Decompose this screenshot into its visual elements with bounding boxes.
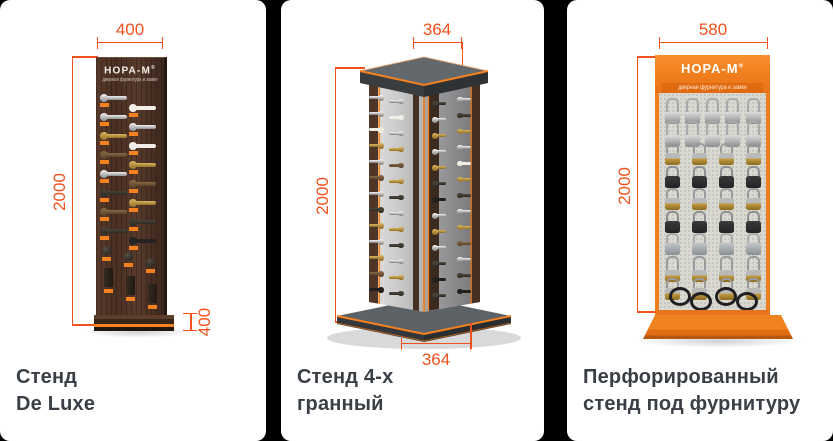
door-handle	[458, 290, 471, 293]
door-hinge	[126, 276, 135, 302]
door-handle	[458, 178, 471, 181]
padlock	[745, 143, 761, 165]
door-handle	[433, 278, 446, 281]
door-handle	[100, 94, 130, 107]
padlock	[664, 166, 680, 188]
dimension-width-label: 400	[100, 20, 160, 40]
door-handle	[389, 276, 402, 279]
brand-logo: НОРА-М® дверная фурнитура и замки	[96, 65, 164, 83]
door-handle	[389, 212, 402, 215]
brand-logo-text: НОРА-М®	[96, 65, 164, 76]
cable-lock	[715, 287, 737, 306]
door-handle	[389, 132, 402, 135]
caption-line1: Перфорированный	[583, 364, 800, 391]
padlock	[718, 211, 734, 233]
door-handle	[389, 196, 402, 199]
door-handle	[129, 161, 159, 174]
door-handle	[129, 142, 159, 155]
door-handle	[389, 164, 402, 167]
stand-base	[94, 315, 174, 331]
door-handle	[433, 198, 446, 201]
door-handle	[458, 130, 471, 133]
door-handle	[389, 228, 402, 231]
caption-line2: стенд под фурнитуру	[583, 391, 800, 418]
card-stand-de-luxe: 400 2000 НОРА-М® дверная фурнитура и зам…	[0, 0, 266, 441]
brand-logo-subtitle: дверная фурнитура и замки	[101, 77, 159, 83]
perforated-stand: НОРА-М® дверная фурнитура и замки	[655, 55, 770, 315]
door-handle	[129, 199, 159, 212]
door-handle	[458, 258, 471, 261]
door-handle	[129, 180, 159, 193]
padlock	[691, 188, 707, 210]
stand-foot	[655, 310, 770, 315]
brand-logo-text: НОРА-М®	[655, 61, 770, 76]
product-lineup-image: 400 2000 НОРА-М® дверная фурнитура и зам…	[0, 0, 833, 441]
wood-display-panel: НОРА-М® дверная фурнитура и замки	[96, 57, 167, 316]
stand-caption: Стенд 4-х гранный	[297, 364, 393, 418]
cable-lock	[736, 292, 758, 311]
cable-lock	[690, 292, 712, 311]
door-knob	[124, 252, 138, 266]
door-handle	[369, 128, 382, 131]
door-knob	[146, 258, 160, 272]
dimension-width-label: 580	[683, 20, 743, 40]
padlock	[718, 166, 734, 188]
caption-line2: De Luxe	[16, 391, 95, 418]
door-handle	[369, 144, 382, 147]
stand-base-plate	[643, 315, 793, 339]
door-handle	[389, 260, 402, 263]
door-handle	[458, 226, 471, 229]
cable-lock	[669, 287, 691, 306]
door-handle	[458, 162, 471, 165]
door-handle	[458, 114, 471, 117]
door-handle	[129, 237, 159, 250]
door-handle	[389, 292, 402, 295]
door-handle	[100, 170, 130, 183]
door-handle	[369, 160, 382, 163]
door-handle	[129, 218, 159, 231]
door-handle	[389, 100, 402, 103]
card-stand-perforated: 580 2000 НОРА-М® дверная фурнитура и зам…	[567, 0, 833, 441]
caption-line2: гранный	[297, 391, 393, 418]
door-handle	[100, 132, 130, 145]
door-handle	[369, 96, 382, 99]
door-handle	[458, 98, 471, 101]
door-handle	[433, 150, 446, 153]
padlock	[718, 143, 734, 165]
door-handle	[100, 151, 130, 164]
registered-mark: ®	[739, 64, 744, 70]
door-handle	[433, 102, 446, 105]
padlock	[664, 143, 680, 165]
padlock	[664, 188, 680, 210]
door-handle	[369, 272, 382, 275]
dimension-width-line	[659, 42, 768, 43]
door-handle	[458, 210, 471, 213]
padlock	[664, 211, 680, 233]
card-stand-4-sided: 364 2000	[281, 0, 544, 441]
stand-caption: Стенд De Luxe	[16, 364, 95, 418]
door-handle	[100, 227, 130, 240]
padlock	[691, 233, 707, 255]
door-handle	[389, 180, 402, 183]
door-handle	[369, 192, 382, 195]
caption-line1: Стенд	[16, 364, 95, 391]
door-handle	[369, 224, 382, 227]
door-handle	[458, 194, 471, 197]
padlock	[745, 166, 761, 188]
dimension-height-line	[637, 57, 638, 312]
door-handle	[129, 104, 159, 117]
padlock	[718, 188, 734, 210]
door-hinge	[104, 268, 113, 294]
door-handle	[433, 294, 446, 297]
door-handle	[433, 118, 446, 121]
caption-line1: Стенд 4-х	[297, 364, 393, 391]
dimension-height-line	[72, 57, 73, 325]
padlock-board	[655, 93, 770, 310]
dimension-height-label: 2000	[50, 162, 70, 222]
door-handle	[433, 182, 446, 185]
padlock	[745, 233, 761, 255]
padlock	[691, 211, 707, 233]
door-handle	[433, 134, 446, 137]
door-handle	[458, 274, 471, 277]
padlock	[745, 188, 761, 210]
door-handle	[100, 208, 130, 221]
door-handle	[369, 208, 382, 211]
door-handle	[458, 242, 471, 245]
door-handle	[369, 256, 382, 259]
door-handle	[369, 176, 382, 179]
brand-logo-subtitle: дверная фурнитура и замки	[662, 83, 763, 93]
door-handle	[369, 112, 382, 115]
padlock	[745, 211, 761, 233]
door-handle	[433, 166, 446, 169]
padlock	[718, 233, 734, 255]
dimension-width-line	[97, 42, 163, 43]
door-handle	[433, 262, 446, 265]
brand-header: НОРА-М® дверная фурнитура и замки	[655, 55, 770, 93]
door-handle	[433, 230, 446, 233]
door-handle	[389, 116, 402, 119]
door-handle	[100, 113, 130, 126]
door-handle	[389, 244, 402, 247]
padlock	[691, 143, 707, 165]
door-handle	[389, 148, 402, 151]
door-handle	[100, 189, 130, 202]
stand-caption: Перфорированный стенд под фурнитуру	[583, 364, 800, 418]
dimension-depth-label: 400	[195, 292, 215, 352]
door-handle	[129, 123, 159, 136]
door-handle	[369, 240, 382, 243]
door-handle	[433, 246, 446, 249]
padlock	[691, 166, 707, 188]
dimension-width-bottom-label: 364	[406, 350, 466, 370]
door-handle	[369, 288, 382, 291]
dimension-width-bottom-line	[401, 343, 471, 344]
door-handle	[458, 146, 471, 149]
door-handle	[433, 214, 446, 217]
padlock	[664, 233, 680, 255]
door-knob	[102, 246, 116, 260]
registered-mark: ®	[151, 65, 156, 71]
dimension-height-label: 2000	[615, 156, 635, 216]
door-hinge	[148, 284, 157, 310]
